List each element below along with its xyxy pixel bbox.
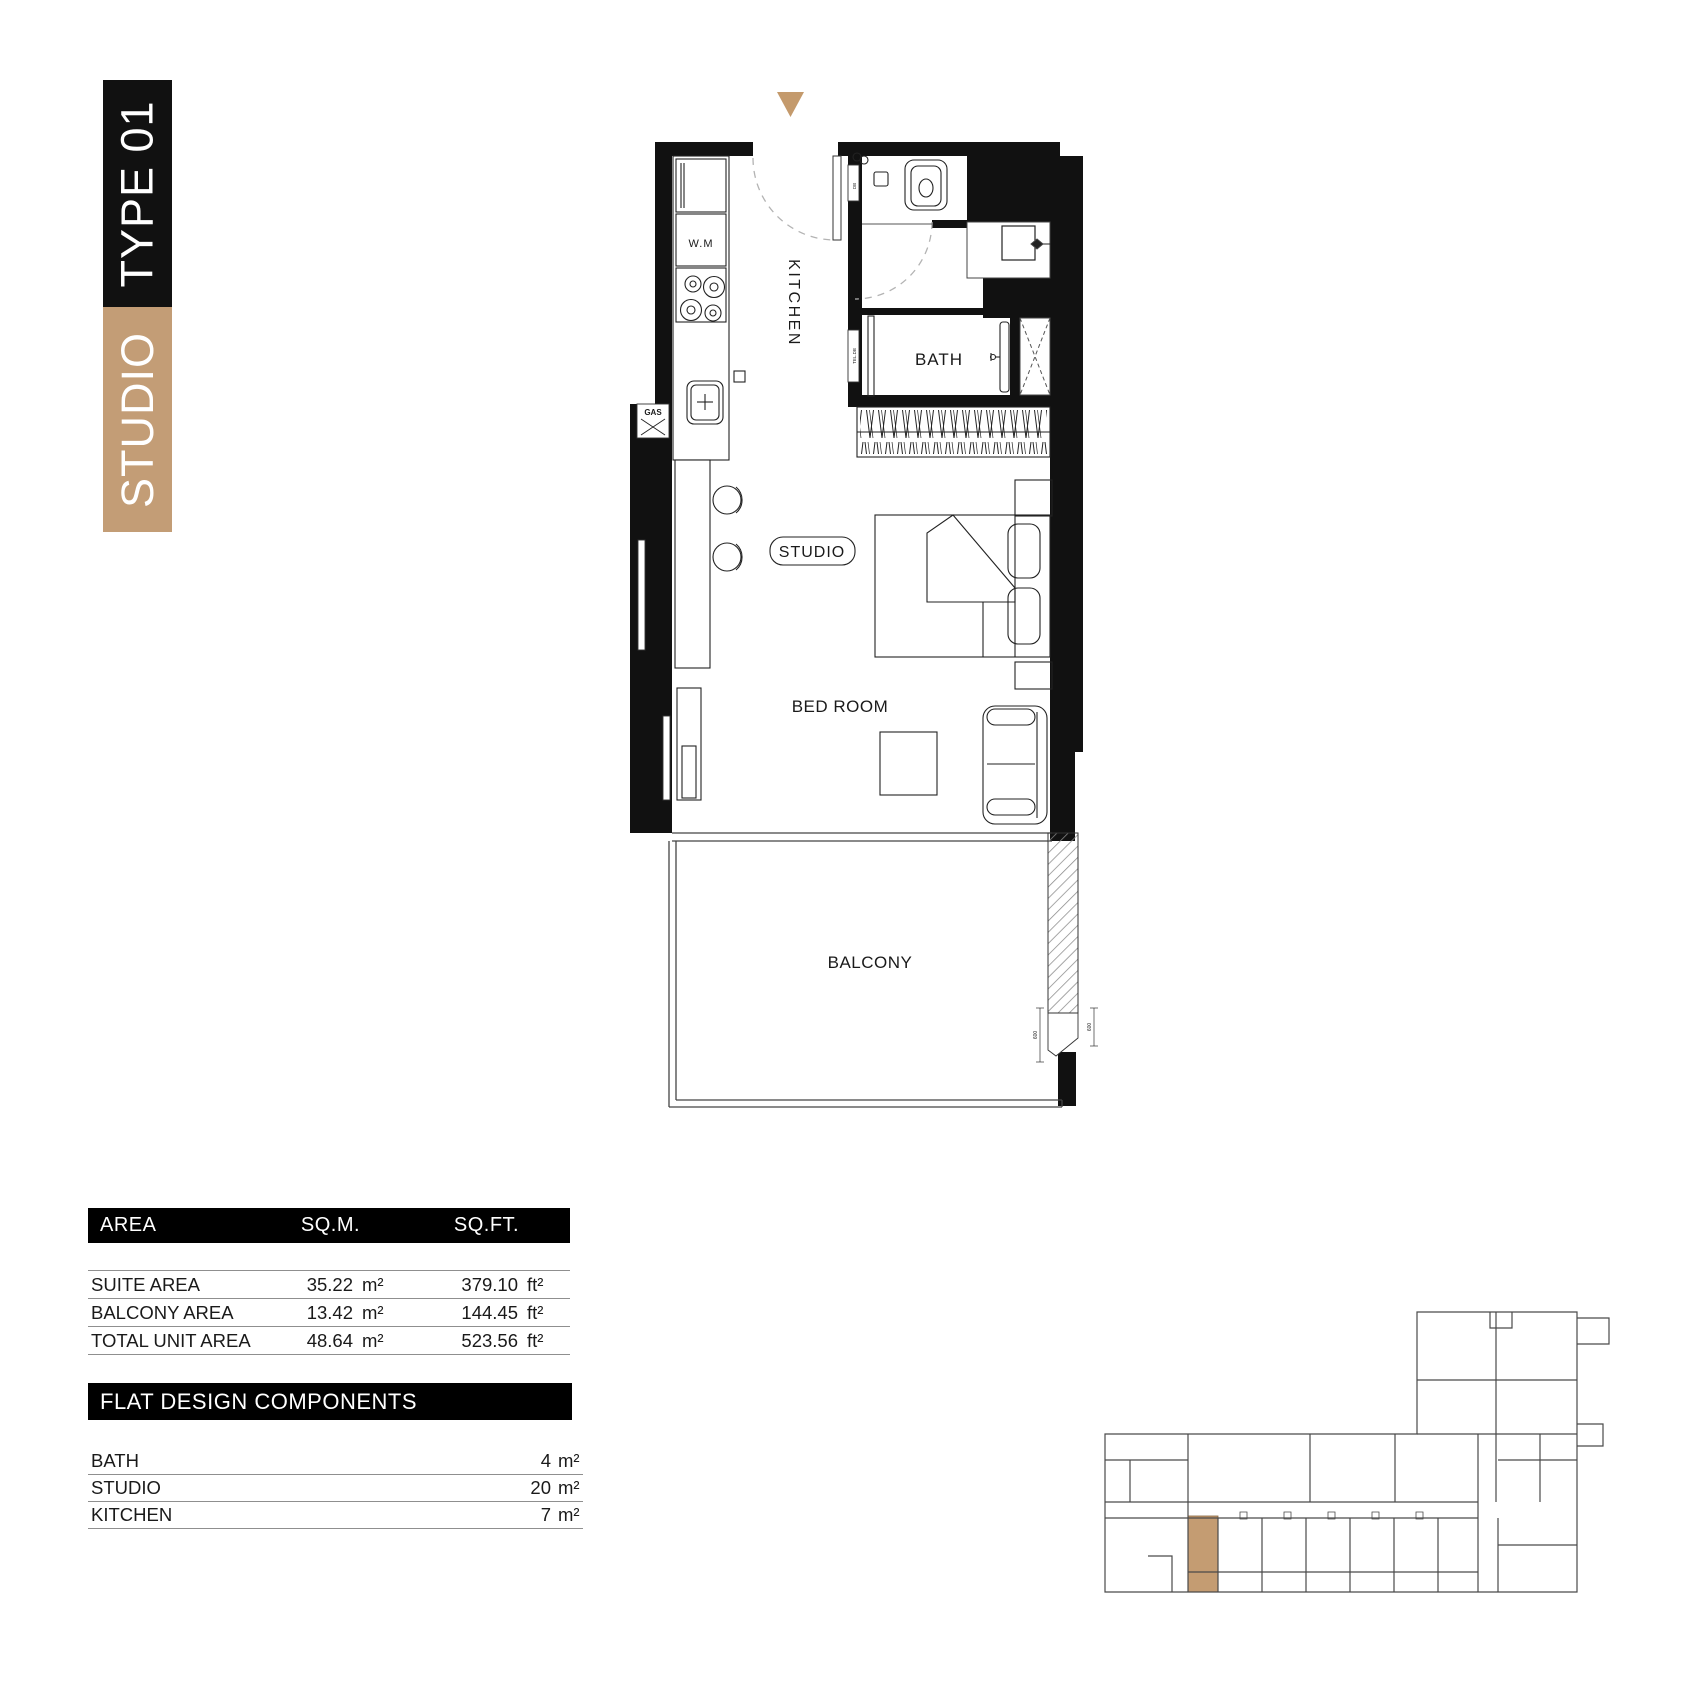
- toilet-room: [853, 153, 947, 210]
- key-plan-outline: [1105, 1312, 1577, 1592]
- label-db: DB: [852, 183, 857, 189]
- entrance-door-leaf: [833, 156, 841, 240]
- wall-right-lower: [1050, 752, 1075, 841]
- shower-tray: [1002, 226, 1035, 260]
- tv-cabinet: [677, 688, 701, 800]
- label-bath: BATH: [915, 350, 963, 369]
- label-kitchen: KITCHEN: [785, 259, 802, 347]
- switch-box: [734, 371, 745, 382]
- bar-counter: [675, 460, 710, 668]
- row-label: TOTAL UNIT AREA: [88, 1327, 258, 1354]
- table-row: KITCHEN 7 m²: [88, 1502, 583, 1529]
- row-label: BALCONY AREA: [88, 1299, 258, 1326]
- sqm-col-header: SQ.M.: [258, 1208, 403, 1243]
- components-table-rows: BATH 4 m² STUDIO 20 m² KITCHEN 7 m²: [88, 1448, 583, 1529]
- shower-drain: [1031, 239, 1043, 249]
- sqft-value: 523.56: [403, 1327, 518, 1354]
- sqm-value: 35.22: [258, 1271, 353, 1298]
- balcony-hatch-wall: [1048, 833, 1078, 1013]
- wall-toilet-bottom-stub: [932, 220, 967, 228]
- area-table-rows: SUITE AREA 35.22 m² 379.10 ft² BALCONY A…: [88, 1270, 570, 1355]
- row-unit: m²: [551, 1502, 583, 1528]
- pillow: [1008, 524, 1040, 578]
- wall-balcony-stub: [1058, 1052, 1076, 1106]
- side-table: [880, 732, 937, 795]
- label-bedroom: BED ROOM: [792, 697, 889, 716]
- tv-panel: [663, 716, 670, 800]
- bed-blanket-fold: [927, 515, 1015, 602]
- label-studio: STUDIO: [779, 544, 845, 561]
- key-plan: [1105, 1312, 1609, 1592]
- wall-toilet-right-block: [967, 156, 1050, 222]
- sofa: [983, 706, 1047, 824]
- area-col-header: AREA: [88, 1208, 258, 1243]
- sqft-col-header: SQ.FT.: [403, 1208, 570, 1243]
- wall-left-upper: [655, 142, 672, 404]
- row-label: SUITE AREA: [88, 1271, 258, 1298]
- bathtub: [1000, 322, 1009, 392]
- sqft-unit: ft²: [518, 1299, 570, 1326]
- shaft: [1020, 318, 1050, 395]
- stool: [713, 486, 741, 514]
- sqm-unit: m²: [353, 1299, 403, 1326]
- table-row: BATH 4 m²: [88, 1448, 583, 1475]
- nightstand: [1015, 662, 1052, 689]
- dimension-label: 600: [1033, 1031, 1039, 1040]
- bath-lobby-door-arc: [855, 222, 932, 299]
- sqft-value: 144.45: [403, 1299, 518, 1326]
- wall-bath-bottom: [848, 395, 1050, 407]
- table-row: TOTAL UNIT AREA 48.64 m² 523.56 ft²: [88, 1327, 570, 1355]
- label-studio-box: STUDIO: [770, 537, 855, 565]
- shower-area: [967, 222, 1051, 278]
- bed-group: [875, 480, 1052, 689]
- nightstand: [1015, 480, 1052, 516]
- row-value: 20: [491, 1475, 551, 1501]
- wall-bath-top: [862, 308, 1010, 315]
- wall-niche: [638, 540, 645, 650]
- row-label: KITCHEN: [88, 1502, 491, 1528]
- entrance-door-arc: [753, 158, 835, 240]
- row-label: STUDIO: [88, 1475, 491, 1501]
- sqft-unit: ft²: [518, 1327, 570, 1354]
- label-washing-machine: W.M: [689, 238, 714, 250]
- components-table: FLAT DESIGN COMPONENTS BATH 4 m² STUDIO …: [88, 1383, 583, 1529]
- wall-top-right: [838, 142, 1060, 156]
- components-table-title: FLAT DESIGN COMPONENTS: [88, 1383, 572, 1420]
- row-value: 7: [491, 1502, 551, 1528]
- wall-right-main: [1050, 202, 1083, 752]
- bidet-spray: [874, 172, 888, 186]
- label-tel-db: TEL.DB: [852, 348, 857, 364]
- row-unit: m²: [551, 1448, 583, 1474]
- label-gas: GAS: [644, 408, 662, 417]
- balcony-corner-detail: [1048, 1013, 1078, 1056]
- bed: [875, 515, 1050, 657]
- area-table: AREA SQ.M. SQ.FT. SUITE AREA 35.22 m² 37…: [88, 1208, 570, 1355]
- pillow: [1008, 588, 1040, 644]
- sqm-unit: m²: [353, 1271, 403, 1298]
- wall-shaft-left: [1010, 315, 1020, 395]
- table-row: SUITE AREA 35.22 m² 379.10 ft²: [88, 1271, 570, 1299]
- floorplan-sheet: { "banner": { "studio_label": "STUDIO", …: [0, 0, 1700, 1700]
- row-value: 4: [491, 1448, 551, 1474]
- sqft-unit: ft²: [518, 1271, 570, 1298]
- key-plan-highlight-unit: [1188, 1516, 1218, 1592]
- dimension-label: 600: [1087, 1023, 1093, 1032]
- sqm-unit: m²: [353, 1327, 403, 1354]
- row-label: BATH: [88, 1448, 491, 1474]
- wardrobe: [857, 407, 1050, 457]
- label-balcony: BALCONY: [828, 953, 913, 972]
- table-row: BALCONY AREA 13.42 m² 144.45 ft²: [88, 1299, 570, 1327]
- sqft-value: 379.10: [403, 1271, 518, 1298]
- bar-stools: [713, 486, 742, 571]
- bath-door-leaf: [868, 316, 874, 396]
- stool: [713, 543, 741, 571]
- sqm-value: 13.42: [258, 1299, 353, 1326]
- entrance-marker-triangle: [777, 92, 804, 117]
- kitchen-fixtures: [673, 156, 745, 668]
- sqm-value: 48.64: [258, 1327, 353, 1354]
- row-unit: m²: [551, 1475, 583, 1501]
- area-table-header: AREA SQ.M. SQ.FT.: [88, 1208, 570, 1243]
- table-row: STUDIO 20 m²: [88, 1475, 583, 1502]
